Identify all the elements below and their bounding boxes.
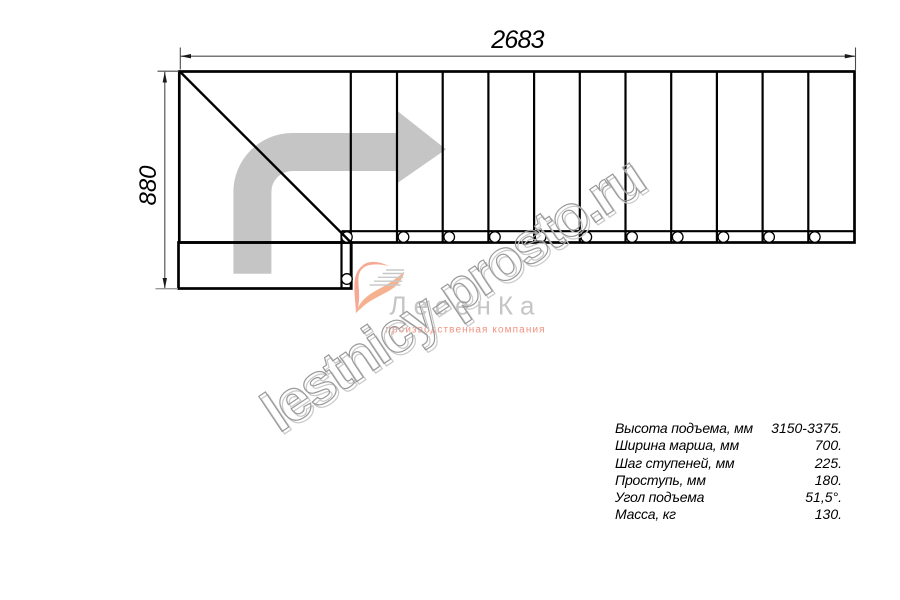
svg-text:880: 880: [135, 165, 162, 206]
svg-text:2683: 2683: [490, 26, 544, 54]
svg-text:lestnicy-prosto.ru: lestnicy-prosto.ru: [250, 145, 655, 445]
